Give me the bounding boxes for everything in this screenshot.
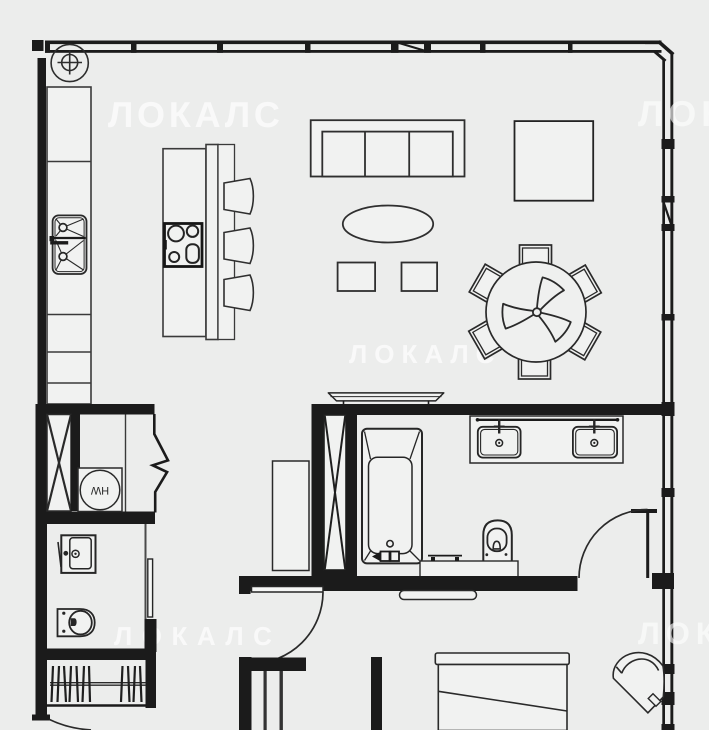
svg-text:ЛОКАЛС: ЛОКАЛС — [114, 621, 281, 651]
svg-text:ЛОКАЛС: ЛОКАЛС — [638, 93, 709, 134]
svg-text:ЛОКАЛС: ЛОКАЛС — [638, 616, 709, 651]
svg-text:ЛОКАЛС: ЛОКАЛС — [108, 94, 284, 135]
svg-text:HW: HW — [90, 484, 109, 496]
